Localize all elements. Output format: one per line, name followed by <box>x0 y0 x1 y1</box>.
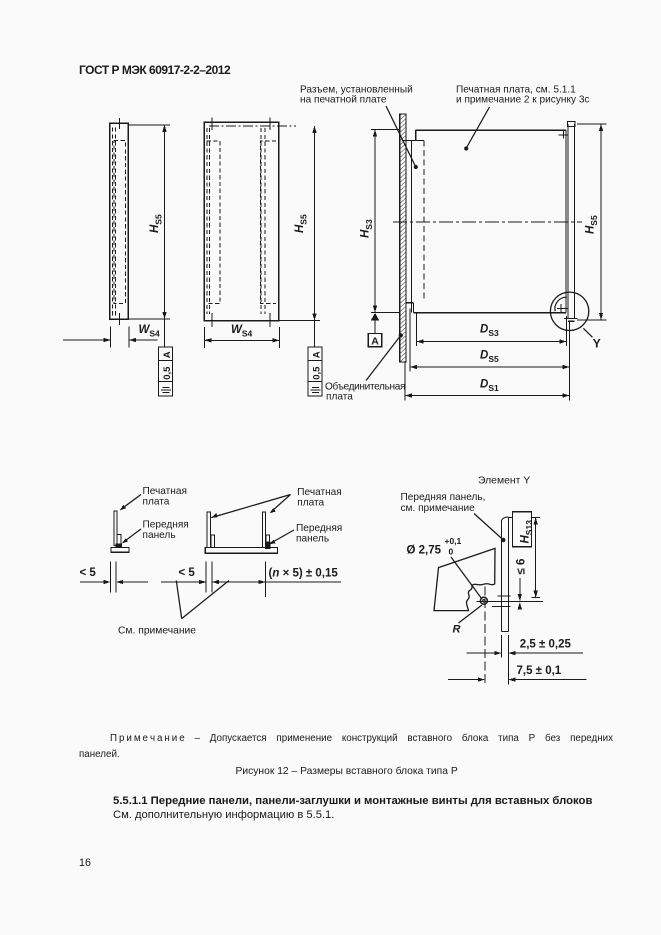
svg-text:A: A <box>162 351 173 358</box>
svg-text:Ø 2,75: Ø 2,75 <box>407 545 442 557</box>
svg-text:2,5 ± 0,25: 2,5 ± 0,25 <box>520 639 572 651</box>
svg-text:< 5: < 5 <box>80 567 97 579</box>
svg-text:плата: плата <box>297 498 324 509</box>
svg-text:Печатная: Печатная <box>297 487 341 498</box>
svg-text:≤ 6: ≤ 6 <box>516 559 528 575</box>
svg-text:Y: Y <box>593 337 601 351</box>
svg-text:Объединительная: Объединительная <box>325 380 405 392</box>
svg-text:плата: плата <box>326 392 353 403</box>
svg-text:Разъем, установленный: Разъем, установленный <box>300 84 413 95</box>
svg-text:DS1: DS1 <box>480 379 499 394</box>
svg-text:Печатная плата, см. 5.1.1: Печатная плата, см. 5.1.1 <box>456 84 576 95</box>
svg-text:Передняя: Передняя <box>296 523 342 534</box>
svg-text:WS4: WS4 <box>231 324 253 339</box>
svg-text:< 5: < 5 <box>179 567 196 579</box>
svg-text:A: A <box>312 351 323 358</box>
svg-text:HS5: HS5 <box>149 214 164 233</box>
svg-text:Передняя: Передняя <box>143 520 189 531</box>
svg-text:+0,1: +0,1 <box>445 536 462 546</box>
svg-text:DS5: DS5 <box>480 350 499 365</box>
svg-text:A: A <box>371 336 379 348</box>
svg-text:панель: панель <box>296 534 329 545</box>
svg-text:см. примечание: см. примечание <box>401 503 476 514</box>
svg-text:См. примечание: См. примечание <box>118 626 196 637</box>
svg-text:на печатной плате: на печатной плате <box>300 95 387 106</box>
svg-text:Печатная: Печатная <box>143 486 187 497</box>
svg-text:WS4: WS4 <box>139 324 161 339</box>
svg-text:и примечание 2 к рисунку 3с: и примечание 2 к рисунку 3с <box>456 95 589 106</box>
svg-text:панель: панель <box>143 530 176 541</box>
svg-text:R: R <box>453 624 461 636</box>
svg-text:7,5 ± 0,1: 7,5 ± 0,1 <box>517 665 562 677</box>
svg-text:HS3: HS3 <box>359 219 374 238</box>
svg-text:HS5: HS5 <box>585 215 600 234</box>
svg-text:(n × 5) ± 0,15: (n × 5) ± 0,15 <box>269 568 339 580</box>
svg-text:HS5: HS5 <box>294 214 309 233</box>
svg-text:плата: плата <box>143 497 170 508</box>
svg-text:0,5: 0,5 <box>162 366 173 380</box>
svg-text:Элемент Y: Элемент Y <box>478 476 530 487</box>
svg-text:DS3: DS3 <box>480 324 499 339</box>
svg-text:0,5: 0,5 <box>312 366 323 380</box>
svg-text:0: 0 <box>449 547 454 557</box>
svg-text:Передняя панель,: Передняя панель, <box>401 492 486 503</box>
